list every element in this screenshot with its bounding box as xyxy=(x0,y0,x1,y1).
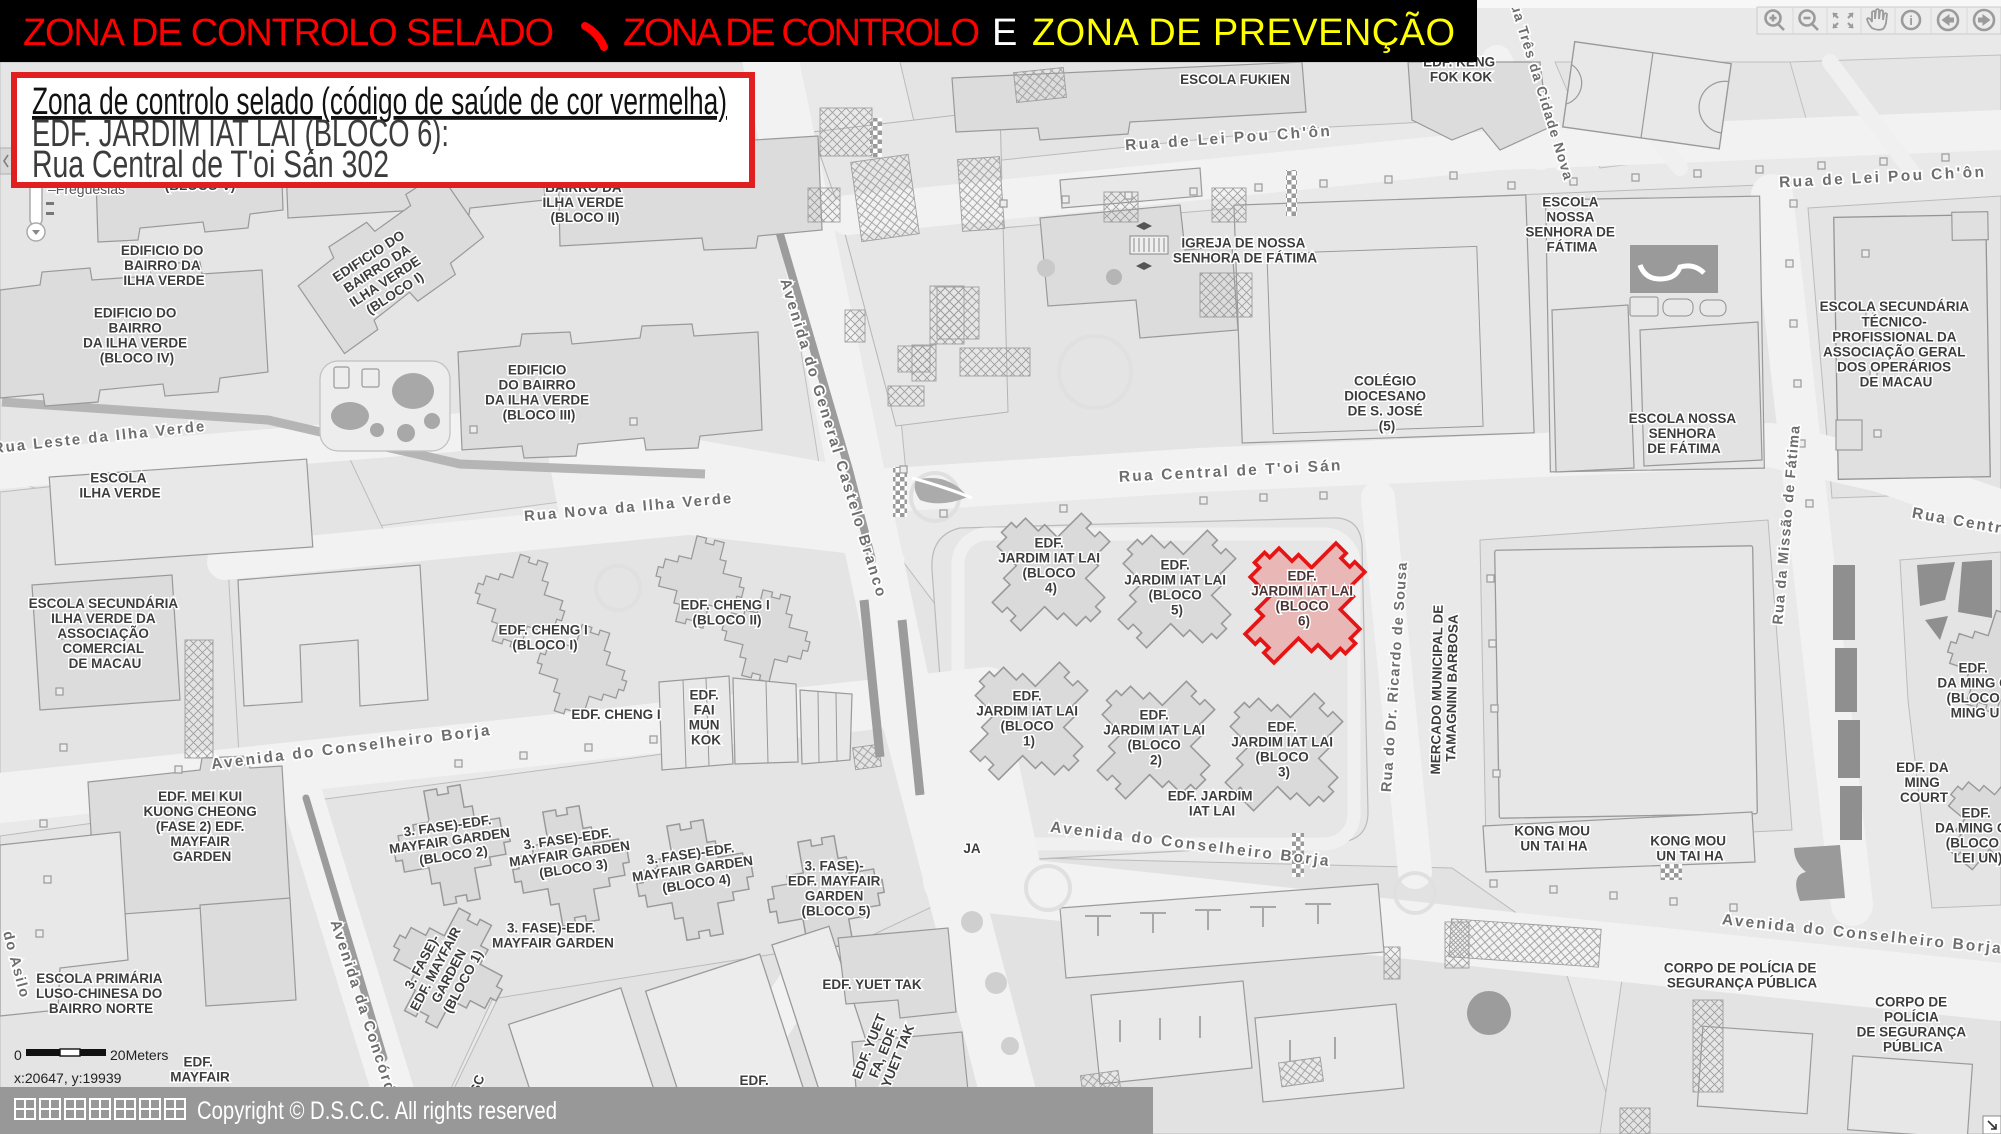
svg-text:JA: JA xyxy=(963,841,981,856)
svg-text:Copyright © D.S.C.C. All right: Copyright © D.S.C.C. All rights reserved xyxy=(197,1097,557,1125)
svg-text:20Meters: 20Meters xyxy=(110,1047,168,1063)
svg-text:EDF. CHENG I (BLOCO II): EDF. CHENG I (BLOCO II) xyxy=(680,597,773,627)
svg-text:EDF. YUET TAK: EDF. YUET TAK xyxy=(822,977,922,992)
svg-text:Rua Central de T'oi Sán 302: Rua Central de T'oi Sán 302 xyxy=(32,144,389,186)
svg-text:MERCADO MUNICIPAL DE TAMAGNINI: MERCADO MUNICIPAL DE TAMAGNINI BARBOSA xyxy=(1428,601,1461,775)
svg-text:3. FASE)-EDF. MAYFAIR GARDEN: 3. FASE)-EDF. MAYFAIR GARDEN xyxy=(492,920,614,950)
svg-text:EDF. FAI MUN KOK: EDF. FAI MUN KOK xyxy=(689,687,724,747)
svg-text:CORPO DE POLÍCIA DE SEGURANÇA: CORPO DE POLÍCIA DE SEGURANÇA PÚBLICA xyxy=(1664,960,1820,990)
svg-text:0: 0 xyxy=(14,1047,22,1063)
svg-text:KONG MOU UN TAI HA: KONG MOU UN TAI HA xyxy=(1514,823,1594,853)
svg-text:ZONA DE CONTROLO SELADOZONA DE: ZONA DE CONTROLO SELADOZONA DE CONTROLOE… xyxy=(23,11,1455,54)
svg-text:i: i xyxy=(1909,13,1913,28)
svg-text:EDF. CHENG I (BLOCO I): EDF. CHENG I (BLOCO I) xyxy=(498,622,591,652)
svg-text:x:20647, y:19939: x:20647, y:19939 xyxy=(14,1070,122,1086)
svg-text:EDF. CHENG I: EDF. CHENG I xyxy=(571,707,660,722)
svg-text:ESCOLA ILHA VERDE: ESCOLA ILHA VERDE xyxy=(79,470,160,500)
svg-text:ESCOLA PRIMÁRIA LUSO-CHINESA D: ESCOLA PRIMÁRIA LUSO-CHINESA DO BAIRRO N… xyxy=(36,971,166,1016)
svg-text:IGREJA DE NOSSA SENHORA DE FÁT: IGREJA DE NOSSA SENHORA DE FÁTIMA xyxy=(1173,235,1317,265)
svg-text:KONG MOU UN TAI HA: KONG MOU UN TAI HA xyxy=(1650,833,1730,863)
svg-text:ESCOLA FUKIEN: ESCOLA FUKIEN xyxy=(1180,72,1290,87)
svg-text:EDIFICIO DO BAIRRO DA ILHA VER: EDIFICIO DO BAIRRO DA ILHA VERDE xyxy=(121,243,207,288)
